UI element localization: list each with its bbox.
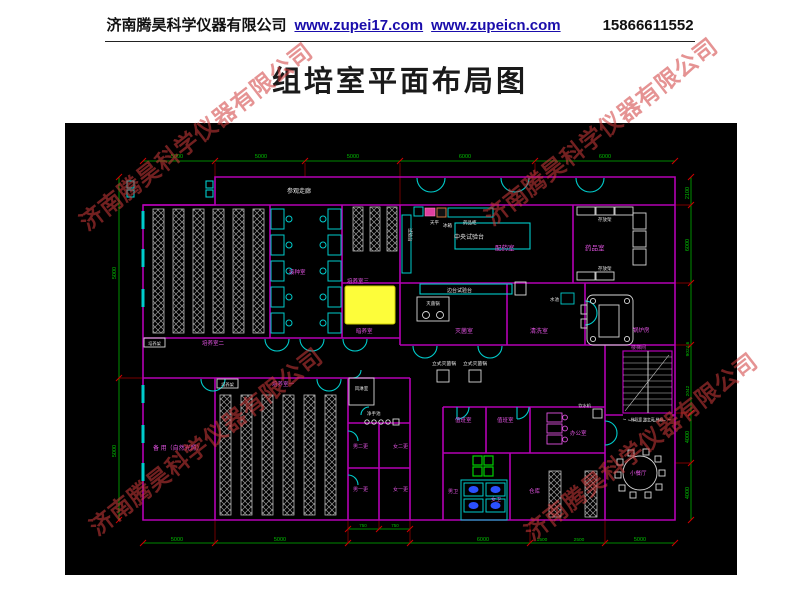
svg-text:存放架: 存放架 <box>598 216 612 223</box>
svg-text:5000: 5000 <box>171 154 183 160</box>
svg-text:水池: 水池 <box>550 296 559 302</box>
svg-text:女二更: 女二更 <box>393 443 408 450</box>
vertical-sterilizers <box>437 370 481 382</box>
svg-text:培养架: 培养架 <box>148 340 161 347</box>
svg-text:女一更: 女一更 <box>393 486 408 493</box>
svg-text:1500: 1500 <box>537 537 548 543</box>
header-divider <box>105 41 695 42</box>
svg-text:5000: 5000 <box>347 154 359 160</box>
svg-text:梯段宽 踏步高 梯级: 梯段宽 踏步高 梯级 <box>631 417 664 422</box>
link-zupei17[interactable]: www.zupei17.com <box>294 17 423 34</box>
svg-text:5000: 5000 <box>274 537 286 543</box>
svg-text:仓库: 仓库 <box>529 487 541 495</box>
page: 济南腾昊科学仪器有限公司 www.zupei17.com www.zupeicn… <box>0 0 800 600</box>
medicine-room-shelves <box>577 207 646 280</box>
corridor-label: 参观走廊 <box>287 187 311 195</box>
svg-text:饮水机: 饮水机 <box>578 402 591 409</box>
svg-text:试验台: 试验台 <box>407 228 414 242</box>
svg-text:小餐厅: 小餐厅 <box>630 469 647 477</box>
header: 济南腾昊科学仪器有限公司 www.zupei17.com www.zupeicn… <box>0 14 800 35</box>
svg-text:值班室: 值班室 <box>455 416 472 424</box>
svg-text:培养室一: 培养室一 <box>272 380 295 388</box>
svg-text:中央试验台: 中央试验台 <box>454 233 484 241</box>
svg-text:培养室三: 培养室三 <box>347 277 370 285</box>
svg-text:立式灭菌锅: 立式灭菌锅 <box>463 360 487 367</box>
svg-text:男卫: 男卫 <box>448 489 458 495</box>
svg-text:接种室: 接种室 <box>289 268 306 276</box>
svg-text:750: 750 <box>391 523 399 528</box>
svg-text:风淋室: 风淋室 <box>355 385 369 392</box>
svg-text:4000: 4000 <box>685 431 691 443</box>
svg-text:5000: 5000 <box>634 537 646 543</box>
svg-text:男二更: 男二更 <box>353 444 368 450</box>
highlight-box[interactable] <box>345 286 395 324</box>
svg-text:6000: 6000 <box>459 154 471 160</box>
svg-text:培养架: 培养架 <box>221 381 234 388</box>
svg-text:灭菌室: 灭菌室 <box>455 327 473 335</box>
svg-text:2100: 2100 <box>685 187 691 199</box>
stairs <box>623 351 672 422</box>
svg-text:配药室: 配药室 <box>495 243 515 252</box>
svg-text:锅炉房: 锅炉房 <box>633 326 650 334</box>
link-zupeicn[interactable]: www.zupeicn.com <box>431 17 560 34</box>
svg-text:男一更: 男一更 <box>353 487 368 493</box>
svg-text:2500: 2500 <box>574 537 585 543</box>
svg-text:清洗室: 清洗室 <box>530 327 548 335</box>
svg-text:楼梯间: 楼梯间 <box>631 344 646 351</box>
svg-text:4000: 4000 <box>685 487 691 499</box>
page-title: 组培室平面布局图 <box>0 58 800 100</box>
svg-text:冰箱: 冰箱 <box>443 222 452 229</box>
svg-text:办公室: 办公室 <box>570 429 587 437</box>
svg-text:边台试验台: 边台试验台 <box>447 287 472 294</box>
svg-text:药品柜: 药品柜 <box>463 219 477 226</box>
phone-number: 15866611552 <box>603 17 694 34</box>
clean-benches <box>271 209 341 333</box>
cad-panel: 参观走廊 培养室二 接种室 培养室三 暗养室 配药室 药品室 灭菌室 清洗室 锅… <box>65 123 737 575</box>
company-name: 济南腾昊科学仪器有限公司 <box>106 14 286 35</box>
svg-text:6000: 6000 <box>599 154 611 160</box>
svg-text:5000: 5000 <box>112 267 118 279</box>
svg-text:值班室: 值班室 <box>497 416 514 424</box>
svg-text:药品室: 药品室 <box>585 243 605 252</box>
svg-text:天平: 天平 <box>430 220 439 226</box>
toilet-block <box>461 456 507 520</box>
svg-text:女卫: 女卫 <box>491 496 501 503</box>
svg-text:备 用（自然光照）: 备 用（自然光照） <box>153 444 203 452</box>
svg-text:净手池: 净手池 <box>367 410 381 417</box>
svg-text:6000: 6000 <box>685 239 691 251</box>
svg-text:暗养室: 暗养室 <box>356 327 373 335</box>
svg-text:5000: 5000 <box>171 537 183 543</box>
svg-text:培养室二: 培养室二 <box>202 339 225 347</box>
culture-racks <box>153 207 597 517</box>
svg-text:750: 750 <box>359 523 367 528</box>
svg-text:灭菌锅: 灭菌锅 <box>426 300 440 307</box>
office-desks <box>547 409 602 444</box>
svg-text:2042: 2042 <box>685 385 691 396</box>
svg-text:5000: 5000 <box>255 154 267 160</box>
svg-text:立式灭菌锅: 立式灭菌锅 <box>432 360 456 367</box>
svg-text:存放架: 存放架 <box>598 265 612 272</box>
floor-plan-svg: 参观走廊 培养室二 接种室 培养室三 暗养室 配药室 药品室 灭菌室 清洗室 锅… <box>65 123 737 575</box>
svg-text:6000: 6000 <box>477 537 489 543</box>
svg-text:9024.6: 9024.6 <box>685 341 691 356</box>
boiler-machine <box>581 295 633 345</box>
svg-text:5000: 5000 <box>112 445 118 457</box>
